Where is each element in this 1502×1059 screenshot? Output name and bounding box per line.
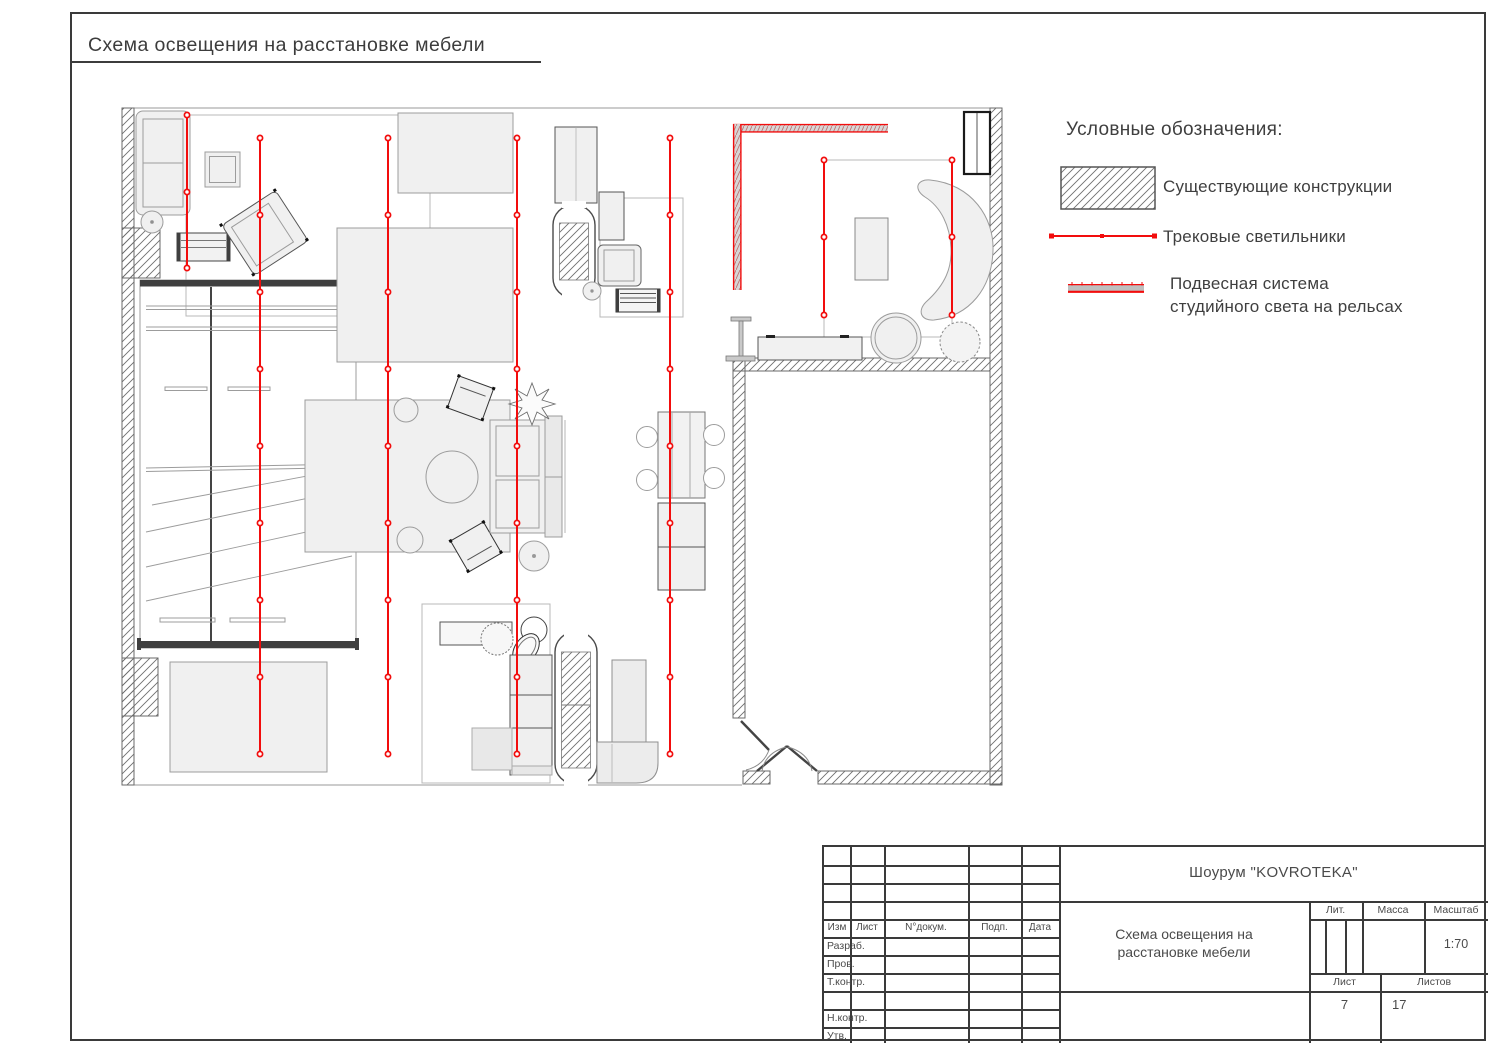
dining-chair bbox=[704, 425, 725, 446]
track-light-fixture bbox=[385, 751, 390, 756]
track-light-fixture bbox=[514, 289, 519, 294]
track-light-fixture bbox=[514, 751, 519, 756]
door-leaf bbox=[787, 746, 817, 771]
track-light-fixture bbox=[184, 265, 189, 270]
legend-track-light-label: Трековые светильники bbox=[1163, 227, 1346, 247]
col-podp: Подп. bbox=[968, 922, 1021, 933]
track-light-fixture bbox=[385, 443, 390, 448]
title-block: Изм Лист N°докум. Подп. Дата Разраб. Про… bbox=[822, 845, 1486, 1041]
dining-table bbox=[658, 412, 705, 498]
track-light-fixture bbox=[667, 366, 672, 371]
pouf-round bbox=[871, 313, 921, 363]
scale-value: 1:70 bbox=[1424, 937, 1488, 951]
pouf-small bbox=[394, 398, 418, 422]
track-light-fixture bbox=[821, 312, 826, 317]
pouf-center bbox=[519, 541, 549, 571]
column-bottom bbox=[555, 628, 597, 788]
cabinet-small bbox=[599, 192, 624, 240]
studio-table bbox=[855, 218, 888, 280]
track-light-fixture bbox=[949, 234, 954, 239]
row-utv: Утв. bbox=[827, 1030, 847, 1042]
track-light-fixture bbox=[667, 135, 672, 140]
track-light-fixture bbox=[257, 289, 262, 294]
sheet-number: 7 bbox=[1309, 997, 1380, 1012]
track-light-fixture bbox=[257, 597, 262, 602]
legend-existing-structures-label: Существующие конструкции bbox=[1163, 177, 1392, 197]
track-light-fixture bbox=[514, 366, 519, 371]
side-table bbox=[141, 211, 163, 233]
row-nkontr: Н.контр. bbox=[827, 1012, 867, 1024]
door-leaf bbox=[741, 721, 769, 750]
rug-top-center bbox=[398, 113, 513, 193]
track-light-fixture bbox=[184, 112, 189, 117]
rug-center-top bbox=[337, 228, 513, 362]
massa-label: Масса bbox=[1362, 904, 1424, 916]
track-light-fixture bbox=[257, 520, 262, 525]
legend-track-light-swatch bbox=[1048, 229, 1160, 243]
furniture bbox=[136, 111, 993, 788]
track-light-fixture bbox=[257, 674, 262, 679]
track-light-fixture bbox=[667, 597, 672, 602]
track-light bbox=[821, 157, 826, 317]
track-light-fixture bbox=[821, 157, 826, 162]
track-light-fixture bbox=[514, 443, 519, 448]
wall-room-bottom-left bbox=[743, 771, 770, 784]
frame-left bbox=[70, 12, 72, 1041]
track-light-fixture bbox=[667, 289, 672, 294]
col-docnum: N°докум. bbox=[884, 922, 968, 933]
col-data: Дата bbox=[1021, 922, 1059, 933]
wall-left-pier-top bbox=[122, 228, 160, 278]
track-light-fixture bbox=[514, 520, 519, 525]
document-title-line2: расстановке мебели bbox=[1059, 944, 1309, 960]
sheets-total: 17 bbox=[1392, 997, 1406, 1012]
track-light-fixture bbox=[821, 234, 826, 239]
legend-title: Условные обозначения: bbox=[1066, 119, 1283, 141]
track-light-fixture bbox=[257, 212, 262, 217]
sofa-top-left bbox=[136, 111, 190, 215]
track-light-fixture bbox=[667, 212, 672, 217]
track-light-fixture bbox=[514, 597, 519, 602]
listov-label: Листов bbox=[1380, 976, 1488, 988]
track-light bbox=[667, 135, 672, 756]
plant-star bbox=[509, 383, 555, 425]
pouf-small bbox=[397, 527, 423, 553]
cabinet-dining bbox=[658, 503, 705, 590]
track-light-fixture bbox=[385, 135, 390, 140]
window bbox=[964, 112, 990, 174]
sofa-block-bottom bbox=[472, 728, 512, 770]
round-rug bbox=[426, 451, 478, 503]
plant-shaggy bbox=[940, 322, 980, 362]
bench-small bbox=[616, 289, 660, 312]
track-light-fixture bbox=[667, 674, 672, 679]
curved-sofa bbox=[918, 180, 993, 320]
wall-room-bottom-right bbox=[818, 771, 1002, 784]
tv-bench bbox=[177, 233, 230, 261]
col-list: Лист bbox=[850, 922, 884, 933]
dining-chair bbox=[704, 468, 725, 489]
track-light-fixture bbox=[184, 189, 189, 194]
dining-chair bbox=[637, 470, 658, 491]
track-light-fixture bbox=[514, 212, 519, 217]
rug-bottom-left bbox=[170, 662, 327, 772]
company-name: Шоурум "KOVROTEKA" bbox=[1059, 864, 1488, 881]
lit-label: Лит. bbox=[1309, 904, 1362, 916]
row-prov: Пров. bbox=[827, 958, 855, 970]
track-light-fixture bbox=[949, 157, 954, 162]
track-light-fixture bbox=[514, 674, 519, 679]
armchair-rotated bbox=[219, 188, 309, 276]
sofa-l-shaped bbox=[597, 660, 658, 783]
track-light-fixture bbox=[667, 443, 672, 448]
row-razrab: Разраб. bbox=[827, 940, 865, 952]
doors bbox=[741, 721, 817, 771]
track-light-fixture bbox=[385, 289, 390, 294]
track-light-fixture bbox=[257, 366, 262, 371]
door-leaf bbox=[757, 746, 787, 771]
drawing-sheet: { "page": { "title": "Схема освещения на… bbox=[0, 0, 1502, 1059]
track-light-fixture bbox=[257, 135, 262, 140]
track-light-fixture bbox=[385, 212, 390, 217]
wall-room-left bbox=[733, 358, 745, 718]
track-light-fixture bbox=[257, 751, 262, 756]
col-izm: Изм bbox=[824, 922, 850, 933]
track-light-fixture bbox=[385, 520, 390, 525]
document-title-line1: Схема освещения на bbox=[1059, 926, 1309, 942]
track-light-fixture bbox=[949, 312, 954, 317]
legend-studio-rail-label-line2: студийного света на рельсах bbox=[1170, 297, 1403, 317]
wardrobe bbox=[555, 127, 597, 203]
dining-chair bbox=[637, 427, 658, 448]
track-light-fixture bbox=[385, 674, 390, 679]
frame-top bbox=[70, 12, 1486, 14]
masshtab-label: Масштаб bbox=[1424, 904, 1488, 916]
wall-left-pier-bottom bbox=[122, 658, 158, 716]
plant-leafy bbox=[481, 623, 513, 655]
wall-right bbox=[990, 108, 1002, 785]
track-light-fixture bbox=[667, 751, 672, 756]
page-title: Схема освещения на расстановке мебели bbox=[88, 34, 485, 57]
track-light-fixture bbox=[514, 135, 519, 140]
legend-studio-rail-label-line1: Подвесная система bbox=[1170, 274, 1329, 294]
floor-lamp bbox=[726, 317, 755, 361]
sofa-center bbox=[490, 416, 565, 537]
track-light-fixture bbox=[667, 520, 672, 525]
legend-existing-structures-swatch bbox=[1060, 166, 1156, 210]
track-light-fixture bbox=[385, 597, 390, 602]
list-label: Лист bbox=[1309, 976, 1380, 988]
console-table bbox=[758, 335, 862, 360]
floor-plan bbox=[115, 98, 1015, 793]
track-light-fixture bbox=[385, 366, 390, 371]
legend-studio-rail-swatch bbox=[1068, 281, 1146, 295]
row-tkontr: Т.контр. bbox=[827, 976, 865, 988]
coffee-table bbox=[205, 152, 240, 187]
page-title-underline bbox=[70, 61, 541, 63]
track-light-fixture bbox=[257, 443, 262, 448]
